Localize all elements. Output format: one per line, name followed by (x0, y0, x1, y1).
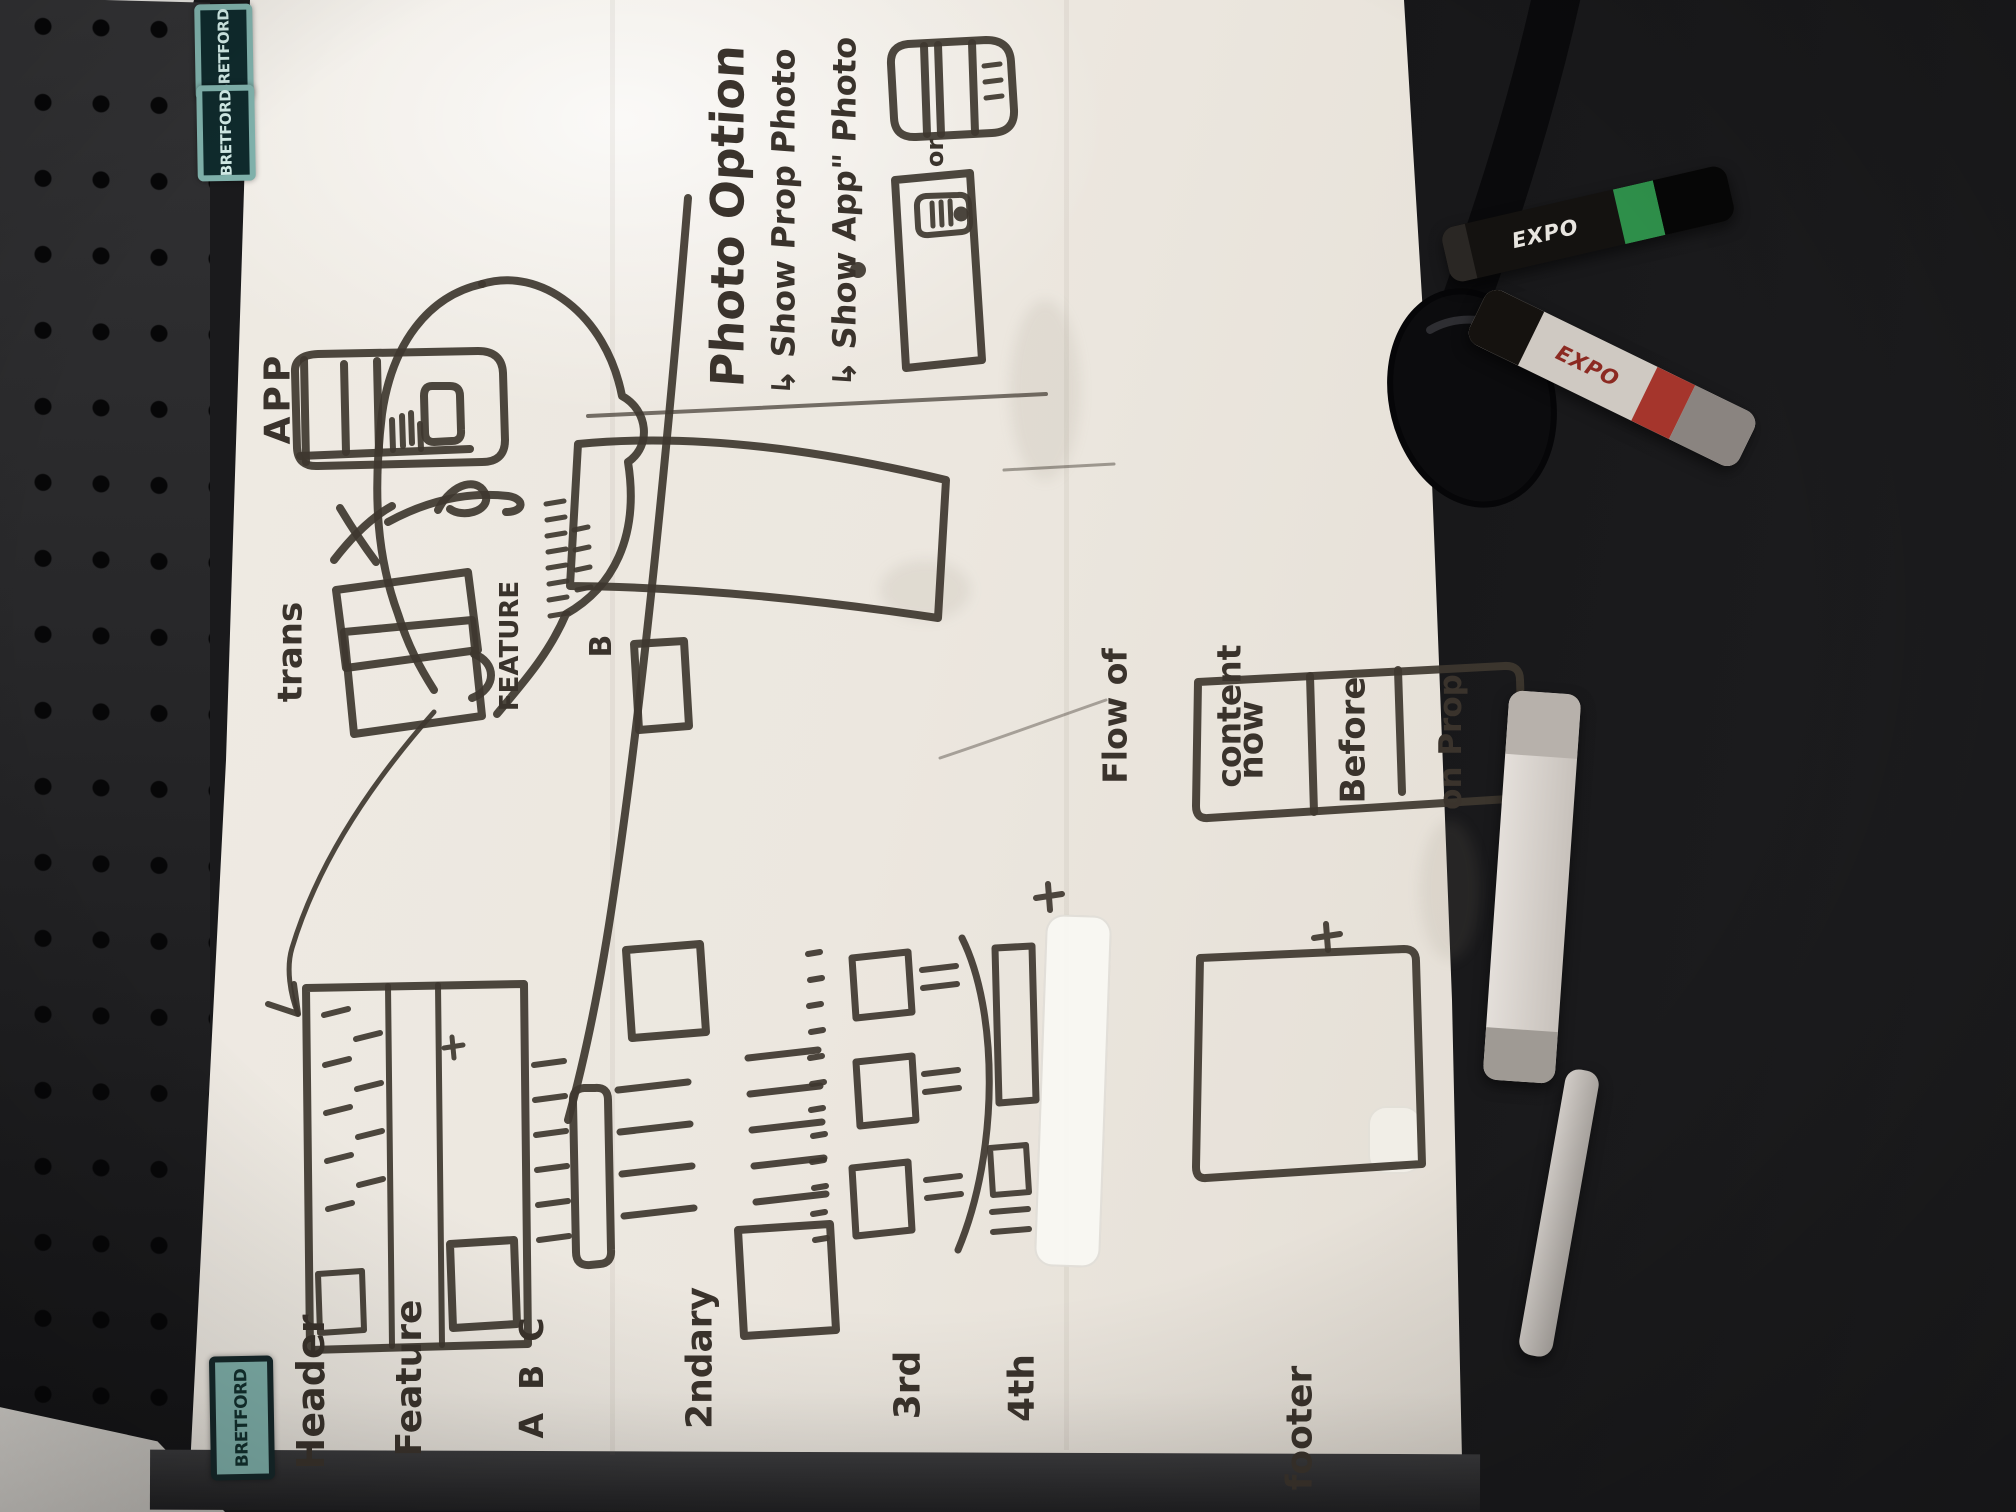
footer-square-sketch (1196, 949, 1422, 1178)
whiteboard-photo: Photo Option ↳ Show Prop Photo ↳ Show Ap… (0, 0, 2016, 1512)
or-label: or (922, 139, 950, 167)
section-label-fourth: 4th (1001, 1354, 1042, 1422)
photo-option-tablet-sketch (891, 40, 1014, 137)
expo-logo-text: EXPO (1552, 341, 1623, 392)
bretford-sticker: BRETFORD (196, 85, 256, 182)
photo-option-phone-sketch (854, 173, 982, 368)
section-label-footer: footer (1279, 1366, 1320, 1491)
section-label-third: 3rd (887, 1351, 928, 1420)
section-label-secondary: 2ndary (679, 1287, 720, 1429)
photo-option-title: Photo Option (702, 43, 755, 389)
flow-label-line1: Flow of (1096, 644, 1134, 787)
feature-variants: A B C (513, 1300, 551, 1457)
marker-body (1522, 756, 1541, 1029)
feature-b-variant: B (586, 581, 621, 711)
marker-cap (1505, 690, 1581, 759)
note-show-prop-photo: ↳ Show Prop Photo (766, 47, 803, 397)
app-phone-sketch (295, 351, 505, 466)
money-squiggle-sketch (334, 484, 521, 562)
flow-of-content-label: Flow of content (1020, 644, 1324, 787)
feature-b-label: FEATURE B (436, 581, 680, 711)
header-feature-wireframe-sketch (306, 984, 611, 1350)
trans-label: trans (271, 602, 310, 702)
flow-cell-onprop: on Prop (1434, 674, 1470, 810)
fourth-section-sketch (990, 884, 1062, 1232)
feature-b-word: FEATURE (496, 581, 526, 711)
arrow-to-header-sketch (268, 712, 434, 1014)
bretford-sticker-text: BRETFORD (216, 90, 236, 177)
section-label-feature: Feature A B C (306, 1300, 634, 1457)
bretford-sticker-text: BRETFORD (231, 1369, 253, 1468)
app-label: APP (257, 352, 298, 445)
secondary-section-sketch (618, 944, 836, 1336)
whiteboard-sketches (0, 0, 2016, 1512)
bretford-sticker-text: BRETFORD (214, 9, 234, 96)
flow-cell-before: Before (1334, 677, 1373, 804)
note-show-app-photo: ↳ Show App" Photo (827, 36, 864, 389)
feature-word: Feature (389, 1300, 430, 1457)
third-section-sketch (808, 938, 989, 1250)
bretford-sticker: BRETFORD (209, 1355, 275, 1480)
expo-logo-text: EXPO (1510, 215, 1581, 254)
flow-cell-now: now (1232, 701, 1271, 780)
marker-tip (1482, 1027, 1557, 1084)
